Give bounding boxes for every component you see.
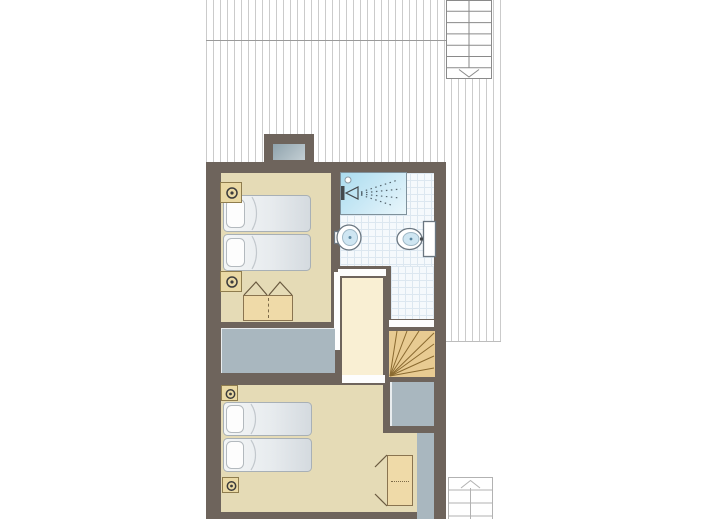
- nightstand-top-1: [220, 182, 242, 203]
- pillow: [227, 406, 244, 433]
- lamp-icon: [221, 272, 243, 293]
- lamp-icon: [222, 386, 239, 402]
- double-bed-top: [223, 195, 311, 271]
- lamp-icon: [221, 183, 243, 204]
- shower-head-icon: [341, 173, 406, 214]
- wardrobe-bottom-bedroom: [387, 455, 413, 506]
- nightstand-top-2: [220, 271, 242, 292]
- roof-ridge-line: [206, 40, 446, 41]
- washbasin: [334, 224, 362, 252]
- shower: [340, 172, 407, 215]
- wardrobe-door-split: [391, 481, 409, 482]
- chimney-flue: [273, 144, 305, 160]
- landing-void-strip: [221, 328, 335, 373]
- interior-winder-stairs: [389, 331, 435, 377]
- nightstand-bottom-2: [222, 477, 239, 493]
- pillow: [227, 442, 244, 469]
- void-top-right-bedroom2: [390, 382, 434, 426]
- lamp-icon: [223, 478, 240, 494]
- hall-floor: [342, 278, 383, 377]
- pillow: [227, 239, 245, 267]
- bathroom-floor-lower: [391, 266, 434, 319]
- exterior-stairs-down: [446, 0, 492, 79]
- floor-plan-canvas: [0, 0, 713, 519]
- double-bed-bottom: [223, 402, 312, 472]
- exterior-stairs-up: [448, 477, 493, 519]
- nightstand-bottom-1: [221, 385, 238, 401]
- wardrobe-top-bedroom: [243, 295, 293, 321]
- door-bathroom-hall: [338, 269, 386, 276]
- opening-stair-top: [389, 320, 434, 327]
- wardrobe-bottom-door-swings: [374, 454, 388, 507]
- wardrobe-door-split: [268, 298, 269, 318]
- toilet: [396, 220, 438, 258]
- wardrobe-top-door-swings: [243, 281, 293, 296]
- void-right-strip: [417, 433, 434, 519]
- door-hall-bedroom-bottom: [342, 375, 385, 383]
